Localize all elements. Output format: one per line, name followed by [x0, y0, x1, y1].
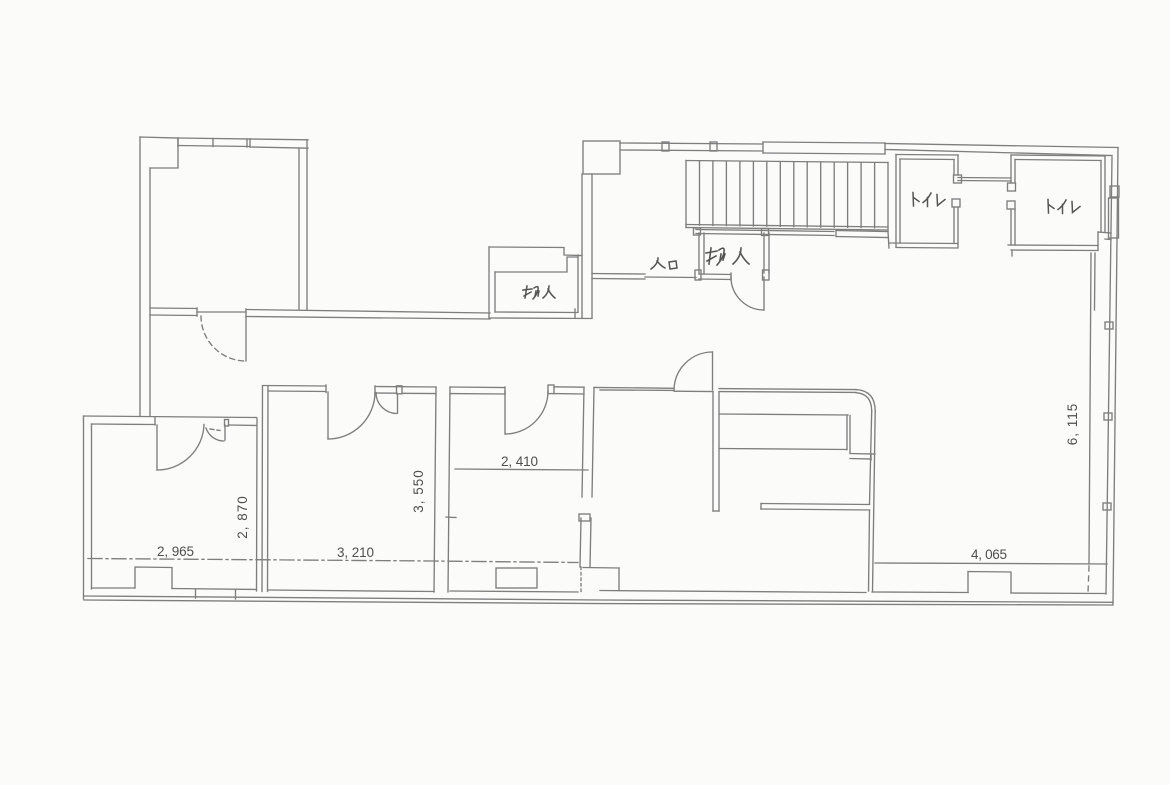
svg-text:3, 210: 3, 210 — [337, 545, 375, 560]
svg-text:2, 870: 2, 870 — [235, 495, 250, 539]
svg-text:6, 115: 6, 115 — [1065, 403, 1080, 446]
svg-text:2, 410: 2, 410 — [501, 454, 539, 469]
svg-text:2, 965: 2, 965 — [157, 544, 195, 559]
svg-text:4, 065: 4, 065 — [971, 547, 1008, 562]
svg-text:3, 550: 3, 550 — [411, 469, 426, 513]
